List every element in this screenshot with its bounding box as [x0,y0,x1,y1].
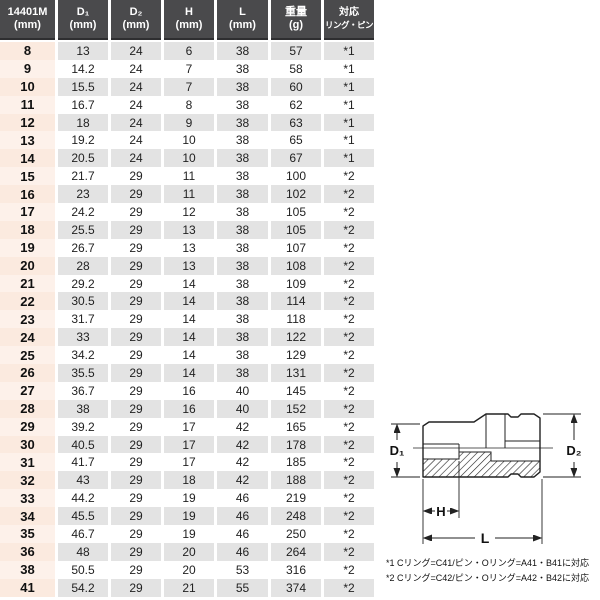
header-unit: (mm) [14,19,41,32]
header-label: 対応 [339,6,359,19]
spec-cell: 42 [217,436,268,454]
spec-cell: 38 [217,185,268,203]
spec-cell: 42 [217,471,268,489]
header-unit: (mm) [229,19,256,32]
spec-cell: 19 [164,507,214,525]
spec-cell: 29 [111,382,161,400]
spec-cell: 118 [271,310,321,328]
spec-cell: *2 [324,400,374,418]
size-cell: 9 [0,60,55,78]
spec-cell: 122 [271,328,321,346]
spec-cell: 18 [58,114,108,132]
d2-label: D₂ [566,443,581,458]
spec-cell: 30.5 [58,292,108,310]
spec-cell: 14.2 [58,60,108,78]
spec-cell: 40 [217,400,268,418]
size-cell: 16 [0,185,55,203]
spec-cell: *2 [324,221,374,239]
size-cell: 22 [0,292,55,310]
spec-cell: 100 [271,167,321,185]
header-unit: (g) [289,19,303,32]
spec-cell: 42 [217,453,268,471]
header-cell-weight: 重量 (g) [271,0,321,40]
spec-cell: 38 [217,221,268,239]
spec-cell: *1 [324,149,374,167]
table-row: 3850.5292053316*2 [0,561,376,579]
table-body: 8132463857*1914.22473858*11015.52473860*… [0,42,376,597]
spec-cell: 38 [217,114,268,132]
header-cell-h: H (mm) [164,0,214,40]
spec-cell: 54.2 [58,579,108,597]
table-row: 914.22473858*1 [0,60,376,78]
size-cell: 13 [0,131,55,149]
spec-cell: 29 [111,239,161,257]
size-cell: 17 [0,203,55,221]
table-row: 2534.2291438129*2 [0,346,376,364]
size-cell: 23 [0,310,55,328]
spec-cell: 264 [271,543,321,561]
spec-cell: 40 [217,382,268,400]
spec-cell: 25.5 [58,221,108,239]
table-row: 2129.2291438109*2 [0,275,376,293]
spec-cell: 108 [271,257,321,275]
size-cell: 15 [0,167,55,185]
spec-cell: *2 [324,203,374,221]
table-row: 1825.5291338105*2 [0,221,376,239]
spec-cell: 29 [111,507,161,525]
spec-cell: 53 [217,561,268,579]
spec-cell: *2 [324,471,374,489]
spec-cell: 58 [271,60,321,78]
spec-cell: 29 [111,328,161,346]
table-row: 2433291438122*2 [0,328,376,346]
spec-cell: 21 [164,579,214,597]
spec-cell: 24.2 [58,203,108,221]
size-cell: 34 [0,507,55,525]
table-row: 2635.5291438131*2 [0,364,376,382]
spec-cell: *2 [324,507,374,525]
spec-cell: 178 [271,436,321,454]
spec-cell: 11 [164,167,214,185]
spec-cell: 48 [58,543,108,561]
size-cell: 12 [0,114,55,132]
spec-cell: *2 [324,310,374,328]
size-cell: 8 [0,42,55,60]
spec-cell: 24 [111,78,161,96]
d1-label: D₁ [390,443,405,458]
spec-cell: 316 [271,561,321,579]
table-row: 2028291338108*2 [0,257,376,275]
spec-cell: 24 [111,60,161,78]
spec-cell: 16.7 [58,96,108,114]
size-cell: 18 [0,221,55,239]
size-cell: 11 [0,96,55,114]
spec-cell: 38 [217,167,268,185]
spec-cell: 9 [164,114,214,132]
spec-cell: 107 [271,239,321,257]
spec-cell: 38 [217,78,268,96]
spec-cell: 109 [271,275,321,293]
spec-cell: 29 [111,275,161,293]
spec-cell: *2 [324,239,374,257]
spec-cell: 29 [111,292,161,310]
spec-cell: 145 [271,382,321,400]
spec-cell: 29.2 [58,275,108,293]
spec-cell: *2 [324,364,374,382]
spec-cell: 21.7 [58,167,108,185]
header-cell-size: 14401M (mm) [0,0,55,40]
size-cell: 19 [0,239,55,257]
spec-cell: *2 [324,257,374,275]
spec-cell: 38 [217,328,268,346]
spec-cell: 57 [271,42,321,60]
table-row: 3445.5291946248*2 [0,507,376,525]
spec-cell: *2 [324,453,374,471]
spec-cell: 18 [164,471,214,489]
spec-cell: 63 [271,114,321,132]
spec-cell: 29 [111,364,161,382]
table-row: 1015.52473860*1 [0,78,376,96]
spec-cell: 105 [271,203,321,221]
size-cell: 21 [0,275,55,293]
spec-cell: *2 [324,185,374,203]
spec-cell: 38 [217,96,268,114]
spec-cell: 14 [164,275,214,293]
table-row: 3243291842188*2 [0,471,376,489]
spec-cell: 29 [111,579,161,597]
spec-cell: 14 [164,292,214,310]
size-cell: 36 [0,543,55,561]
spec-cell: 45.5 [58,507,108,525]
size-cell: 35 [0,525,55,543]
footnote-2: *2 Cリング=C42/ピン・Oリング=A42・B42に対応 [386,571,589,586]
spec-cell: 34.2 [58,346,108,364]
spec-cell: 250 [271,525,321,543]
spec-cell: *2 [324,436,374,454]
spec-cell: 29 [111,525,161,543]
spec-cell: 29 [111,436,161,454]
spec-cell: 46 [217,507,268,525]
table-row: 3546.7291946250*2 [0,525,376,543]
spec-cell: 8 [164,96,214,114]
size-cell: 20 [0,257,55,275]
spec-cell: *2 [324,543,374,561]
table-row: 2736.7291640145*2 [0,382,376,400]
spec-cell: *1 [324,78,374,96]
spec-cell: *2 [324,489,374,507]
spec-cell: 129 [271,346,321,364]
spec-cell: 41.7 [58,453,108,471]
spec-cell: 38 [217,275,268,293]
spec-cell: 374 [271,579,321,597]
header-label: D₁ [77,6,90,19]
spec-cell: 31.7 [58,310,108,328]
spec-cell: 188 [271,471,321,489]
spec-cell: 17 [164,453,214,471]
spec-cell: 29 [111,310,161,328]
spec-cell: 38 [217,131,268,149]
header-label: 重量 [285,6,307,19]
spec-cell: 20 [164,561,214,579]
spec-cell: 67 [271,149,321,167]
size-cell: 33 [0,489,55,507]
spec-cell: *2 [324,346,374,364]
spec-cell: 46.7 [58,525,108,543]
header-label: D₂ [130,6,143,19]
header-label: L [239,6,246,19]
spec-cell: 13 [164,239,214,257]
table-row: 3040.5291742178*2 [0,436,376,454]
size-cell: 38 [0,561,55,579]
spec-cell: *2 [324,382,374,400]
l-label: L [481,530,490,546]
table-row: 1116.72483862*1 [0,96,376,114]
spec-cell: 39.2 [58,418,108,436]
spec-cell: 19 [164,525,214,543]
table-row: 3344.2291946219*2 [0,489,376,507]
size-cell: 14 [0,149,55,167]
spec-cell: 38 [217,310,268,328]
header-cell-l: L (mm) [217,0,268,40]
spec-cell: 24 [111,42,161,60]
table-row: 12182493863*1 [0,114,376,132]
spec-cell: 13 [164,257,214,275]
spec-cell: 38 [217,42,268,60]
header-unit: (mm) [70,19,97,32]
spec-cell: 29 [111,167,161,185]
spec-cell: 7 [164,78,214,96]
spec-cell: 46 [217,489,268,507]
spec-cell: *2 [324,328,374,346]
spec-table: 14401M (mm) D₁ (mm) D₂ (mm) H (mm) L (mm… [0,0,376,597]
spec-cell: 20.5 [58,149,108,167]
size-cell: 30 [0,436,55,454]
header-label: H [185,6,193,19]
spec-cell: 38 [217,364,268,382]
spec-cell: 65 [271,131,321,149]
socket-diagram: D₁ D₂ H L [383,398,597,556]
size-cell: 26 [0,364,55,382]
header-cell-ring-pin: 対応 リング・ピン [324,0,374,40]
spec-cell: 24 [111,96,161,114]
spec-cell: 13 [164,221,214,239]
spec-cell: 17 [164,436,214,454]
spec-cell: 15.5 [58,78,108,96]
spec-cell: *1 [324,131,374,149]
spec-cell: 7 [164,60,214,78]
spec-cell: 131 [271,364,321,382]
spec-cell: 16 [164,400,214,418]
spec-cell: 14 [164,328,214,346]
spec-cell: 36.7 [58,382,108,400]
table-row: 2939.2291742165*2 [0,418,376,436]
spec-cell: 29 [111,203,161,221]
spec-cell: 248 [271,507,321,525]
size-cell: 41 [0,579,55,597]
size-cell: 25 [0,346,55,364]
h-label: H [436,504,445,519]
table-row: 2838291640152*2 [0,400,376,418]
spec-cell: 29 [111,257,161,275]
spec-cell: 11 [164,185,214,203]
size-cell: 27 [0,382,55,400]
spec-cell: 165 [271,418,321,436]
spec-cell: 29 [111,489,161,507]
size-cell: 10 [0,78,55,96]
spec-cell: 185 [271,453,321,471]
size-cell: 31 [0,453,55,471]
footnote-1: *1 Cリング=C41/ピン・Oリング=A41・B41に対応 [386,556,589,571]
spec-cell: 62 [271,96,321,114]
spec-cell: 10 [164,131,214,149]
header-unit: (mm) [123,19,150,32]
spec-cell: 19 [164,489,214,507]
spec-cell: 38 [217,292,268,310]
spec-cell: 152 [271,400,321,418]
spec-cell: 46 [217,525,268,543]
spec-cell: 26.7 [58,239,108,257]
spec-cell: *1 [324,114,374,132]
spec-cell: 38 [217,149,268,167]
spec-cell: 55 [217,579,268,597]
spec-cell: 114 [271,292,321,310]
spec-cell: 33 [58,328,108,346]
spec-cell: *1 [324,96,374,114]
table-row: 1420.524103867*1 [0,149,376,167]
header-cell-d2: D₂ (mm) [111,0,161,40]
spec-cell: 14 [164,310,214,328]
spec-cell: 6 [164,42,214,60]
spec-cell: 24 [111,131,161,149]
spec-cell: 29 [111,543,161,561]
footnotes: *1 Cリング=C41/ピン・Oリング=A41・B41に対応 *2 Cリング=C… [386,556,589,586]
spec-cell: *2 [324,167,374,185]
spec-cell: 14 [164,346,214,364]
spec-cell: 23 [58,185,108,203]
spec-cell: 24 [111,149,161,167]
table-row: 2331.7291438118*2 [0,310,376,328]
table-row: 1319.224103865*1 [0,131,376,149]
spec-cell: 24 [111,114,161,132]
spec-cell: 38 [217,239,268,257]
table-row: 8132463857*1 [0,42,376,60]
spec-cell: 38 [58,400,108,418]
table-row: 1926.7291338107*2 [0,239,376,257]
size-cell: 32 [0,471,55,489]
spec-cell: *2 [324,418,374,436]
spec-cell: 29 [111,221,161,239]
spec-cell: 40.5 [58,436,108,454]
spec-cell: 105 [271,221,321,239]
spec-cell: 50.5 [58,561,108,579]
spec-cell: 12 [164,203,214,221]
spec-cell: 29 [111,453,161,471]
spec-cell: 38 [217,203,268,221]
spec-cell: 38 [217,60,268,78]
header-label: 14401M [8,6,48,19]
spec-cell: *1 [324,60,374,78]
table-row: 3141.7291742185*2 [0,453,376,471]
spec-cell: 29 [111,471,161,489]
spec-cell: *1 [324,42,374,60]
spec-cell: 19.2 [58,131,108,149]
header-unit: リング・ピン [325,19,373,32]
spec-cell: 14 [164,364,214,382]
spec-cell: 29 [111,418,161,436]
spec-cell: 29 [111,561,161,579]
spec-cell: 10 [164,149,214,167]
header-unit: (mm) [176,19,203,32]
spec-cell: 219 [271,489,321,507]
header-cell-d1: D₁ (mm) [58,0,108,40]
spec-cell: 13 [58,42,108,60]
spec-cell: 20 [164,543,214,561]
spec-cell: 42 [217,418,268,436]
table-header: 14401M (mm) D₁ (mm) D₂ (mm) H (mm) L (mm… [0,0,376,40]
spec-cell: 16 [164,382,214,400]
spec-cell: *2 [324,561,374,579]
size-cell: 24 [0,328,55,346]
table-row: 2230.5291438114*2 [0,292,376,310]
size-cell: 28 [0,400,55,418]
spec-cell: 44.2 [58,489,108,507]
spec-cell: 35.5 [58,364,108,382]
table-row: 3648292046264*2 [0,543,376,561]
spec-cell: *2 [324,292,374,310]
spec-cell: 102 [271,185,321,203]
size-cell: 29 [0,418,55,436]
spec-cell: 17 [164,418,214,436]
spec-cell: 28 [58,257,108,275]
table-row: 1623291138102*2 [0,185,376,203]
table-row: 1521.7291138100*2 [0,167,376,185]
section-hatch [423,452,540,477]
spec-cell: *2 [324,579,374,597]
spec-cell: 29 [111,346,161,364]
spec-cell: *2 [324,525,374,543]
spec-cell: 29 [111,400,161,418]
spec-cell: 46 [217,543,268,561]
spec-cell: 38 [217,346,268,364]
table-row: 4154.2292155374*2 [0,579,376,597]
spec-cell: 60 [271,78,321,96]
spec-cell: 29 [111,185,161,203]
spec-cell: 43 [58,471,108,489]
spec-cell: 38 [217,257,268,275]
table-row: 1724.2291238105*2 [0,203,376,221]
spec-cell: *2 [324,275,374,293]
